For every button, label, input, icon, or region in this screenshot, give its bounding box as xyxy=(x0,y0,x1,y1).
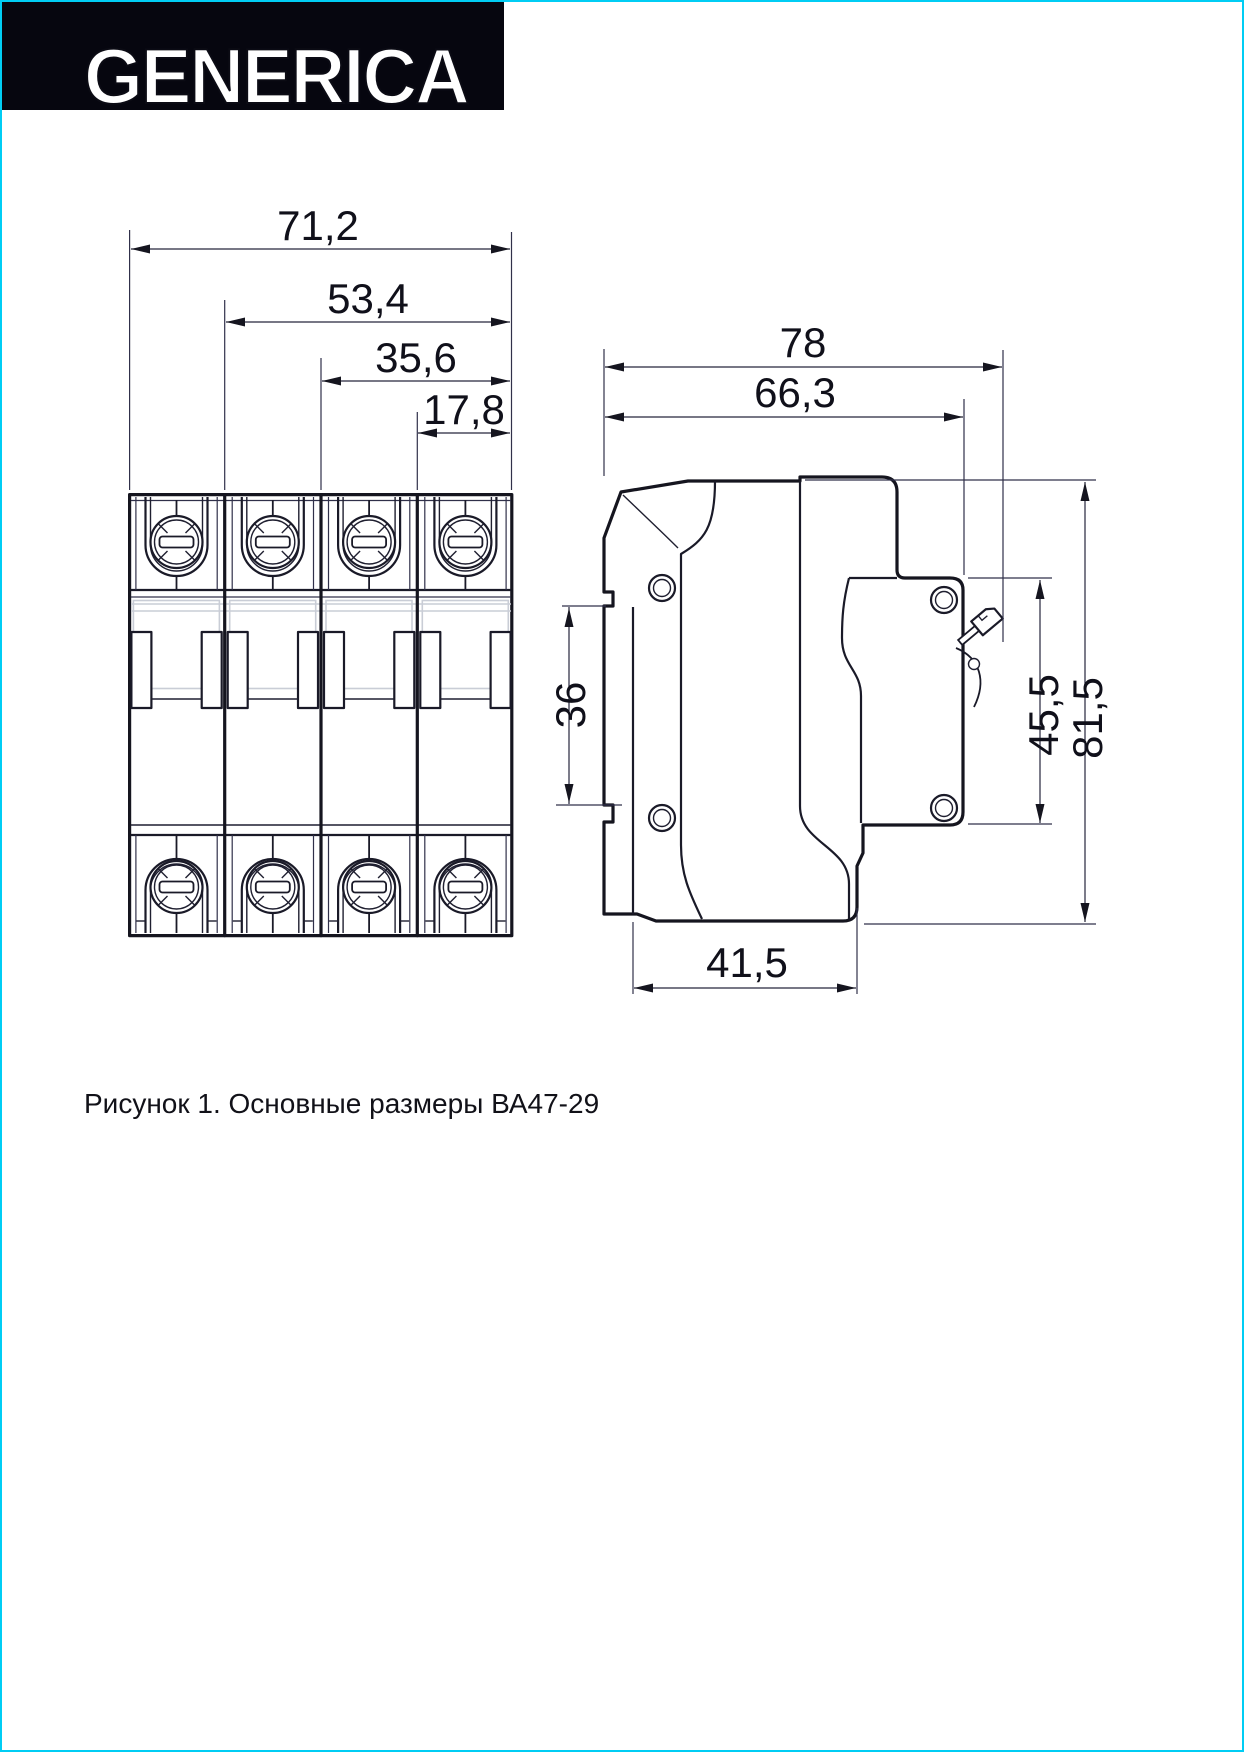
side-view xyxy=(604,477,1003,921)
dim-base-depth: 41,5 xyxy=(706,939,788,986)
module-1 xyxy=(131,497,221,933)
dim-depth-total: 78 xyxy=(780,319,827,366)
dimension-drawing: 71,2 53,4 35,6 17,8 xyxy=(0,0,1244,1140)
dim-width-2-modules: 35,6 xyxy=(375,334,457,381)
housing-screw-icon xyxy=(649,575,675,601)
module-2 xyxy=(228,497,318,933)
figure-caption: Рисунок 1. Основные размеры ВА47-29 xyxy=(84,1086,599,1122)
dim-height-total: 81,5 xyxy=(1064,677,1111,759)
terminal-screw-icon xyxy=(931,795,957,821)
dim-width-4-modules: 71,2 xyxy=(277,202,359,249)
front-view-dimensions: 71,2 53,4 35,6 17,8 xyxy=(130,202,512,490)
side-view-dimensions: 78 66,3 36 45,5 81,5 41,5 xyxy=(547,319,1111,994)
dim-terminal-height: 45,5 xyxy=(1020,674,1067,756)
brand-logo: GENERICA xyxy=(84,37,468,115)
dim-depth-body: 66,3 xyxy=(754,369,836,416)
housing-screw-icon xyxy=(649,805,675,831)
module-3 xyxy=(324,497,414,933)
dim-din-slot-height: 36 xyxy=(547,682,594,729)
front-view xyxy=(130,495,512,936)
dim-width-3-modules: 53,4 xyxy=(327,275,409,322)
terminal-screw-icon xyxy=(931,587,957,613)
module-4 xyxy=(420,497,510,933)
dim-module-width: 17,8 xyxy=(423,386,505,433)
document-page: GENERICA xyxy=(0,0,1244,1752)
